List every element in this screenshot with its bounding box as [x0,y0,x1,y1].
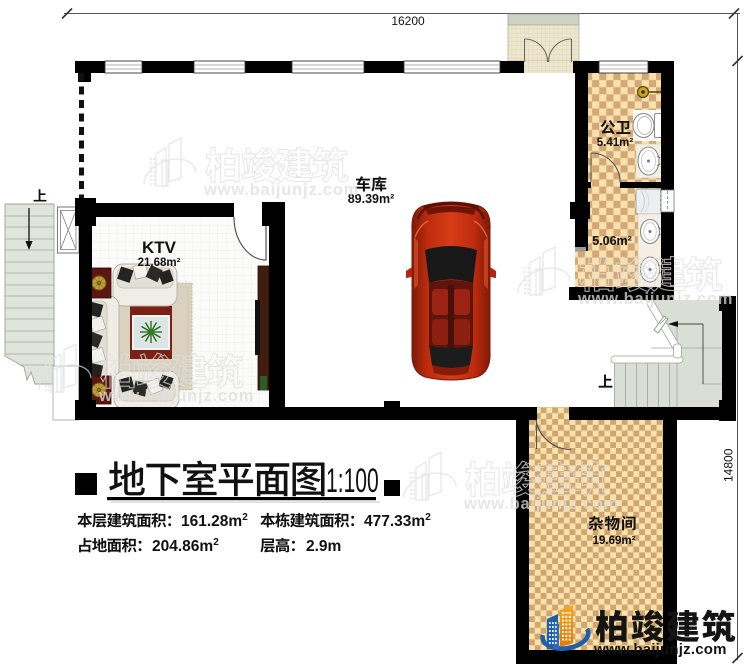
svg-text:477.33m2: 477.33m2 [364,512,431,530]
svg-text:5.06m²: 5.06m² [592,234,632,248]
svg-text:KTV: KTV [142,238,177,257]
svg-text:5.41m²: 5.41m² [597,137,634,149]
svg-text:2.9m: 2.9m [306,538,341,555]
svg-text:204.86m2: 204.86m2 [152,537,219,555]
svg-text:www.baijunjz.com: www.baijunjz.com [577,290,733,308]
svg-text:www.baijunjz.com: www.baijunjz.com [203,181,359,199]
svg-text:16200: 16200 [391,14,425,28]
svg-text:14800: 14800 [722,448,736,482]
svg-text:19.69m²: 19.69m² [593,535,636,547]
svg-text:21.68m²: 21.68m² [138,257,181,269]
svg-text:161.28m2: 161.28m2 [181,512,248,530]
svg-text:www.baijunjz.com: www.baijunjz.com [98,387,254,405]
svg-text:1:100: 1:100 [326,461,379,499]
svg-text:www.baijunjz.com: www.baijunjz.com [463,495,619,513]
svg-text:www.baijunjz.com: www.baijunjz.com [593,641,727,658]
